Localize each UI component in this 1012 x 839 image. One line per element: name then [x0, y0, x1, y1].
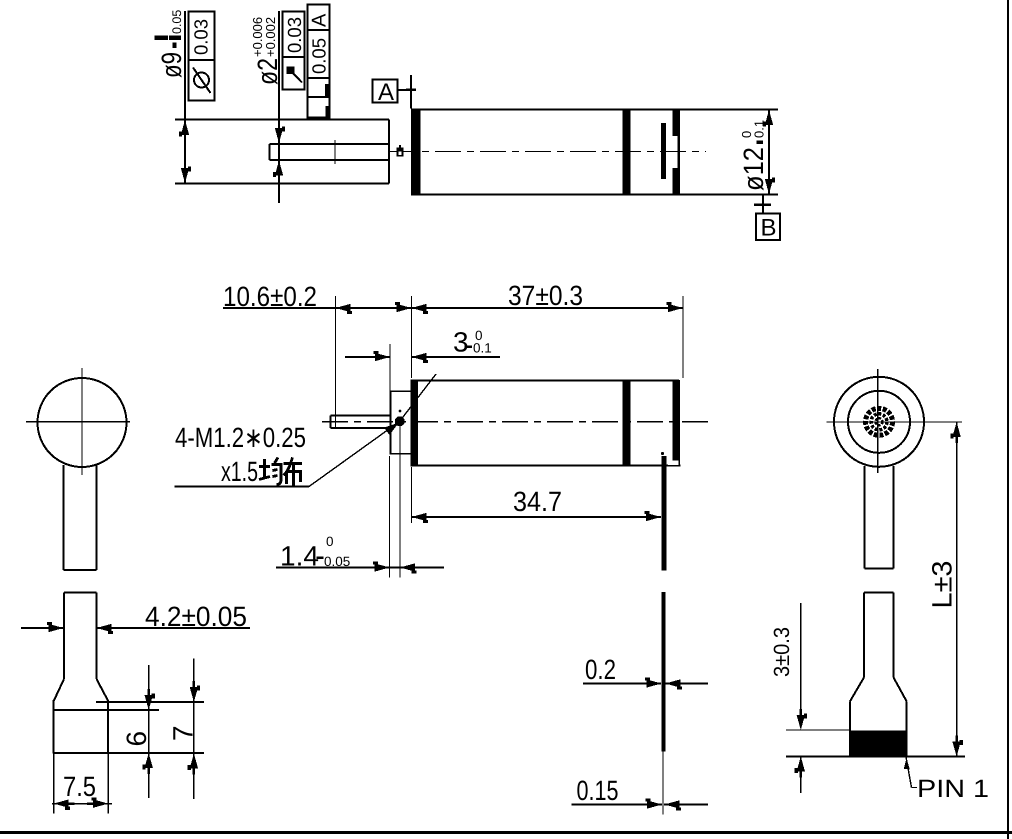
svg-text:0.05: 0.05 [310, 38, 331, 74]
svg-text:0.03: 0.03 [285, 17, 306, 53]
svg-text:3±0.3: 3±0.3 [769, 627, 794, 677]
svg-text:A: A [309, 13, 331, 27]
svg-text:0.03: 0.03 [192, 19, 213, 55]
svg-text:0.1: 0.1 [752, 120, 767, 138]
svg-text:1.4: 1.4 [280, 541, 319, 572]
svg-text:L±3: L±3 [927, 561, 958, 609]
svg-text:ø2: ø2 [252, 58, 283, 85]
svg-text:A: A [378, 79, 394, 106]
svg-text:10.6±0.2: 10.6±0.2 [223, 281, 317, 312]
svg-text:4.2±0.05: 4.2±0.05 [145, 601, 247, 632]
svg-text:0.1: 0.1 [473, 341, 492, 356]
svg-text:ø12: ø12 [738, 147, 769, 191]
svg-text:0.05: 0.05 [170, 10, 184, 34]
svg-text:4-M1.2∗0.25: 4-M1.2∗0.25 [175, 422, 306, 453]
svg-text:x1.5: x1.5 [221, 456, 258, 487]
svg-text:0.15: 0.15 [577, 775, 619, 806]
svg-text:37±0.3: 37±0.3 [508, 280, 583, 311]
svg-text:PIN 1: PIN 1 [917, 775, 989, 803]
svg-text:+0.002: +0.002 [263, 17, 278, 57]
svg-text:7.5: 7.5 [63, 771, 96, 802]
svg-text:3: 3 [453, 327, 469, 358]
svg-text:34.7: 34.7 [513, 486, 562, 517]
svg-text:7: 7 [168, 725, 199, 741]
svg-text:0.2: 0.2 [585, 654, 616, 685]
svg-text:0: 0 [326, 534, 334, 549]
svg-text:ø9: ø9 [156, 52, 187, 78]
svg-text:B: B [761, 215, 777, 242]
svg-text:6: 6 [121, 731, 152, 747]
svg-text:0.05: 0.05 [324, 554, 350, 569]
